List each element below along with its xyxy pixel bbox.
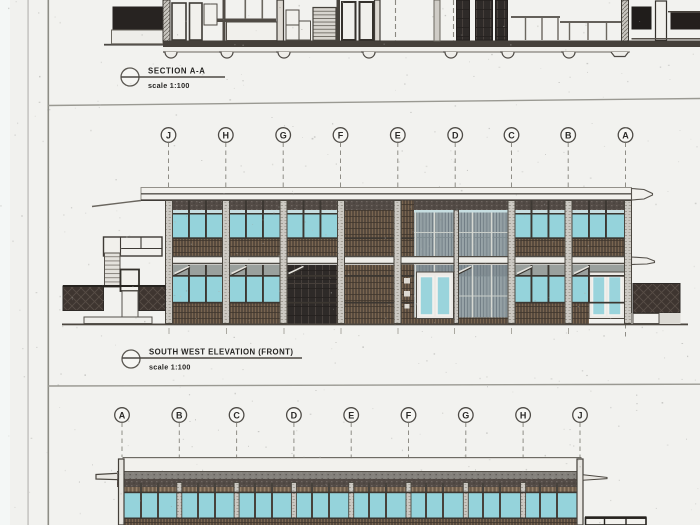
svg-text:D: D	[291, 410, 298, 420]
svg-text:H: H	[520, 410, 527, 420]
svg-text:E: E	[395, 130, 401, 140]
svg-text:C: C	[508, 130, 515, 140]
svg-text:C: C	[233, 410, 240, 420]
svg-text:F: F	[338, 130, 344, 140]
svg-text:J: J	[166, 130, 171, 140]
svg-text:G: G	[462, 410, 469, 420]
svg-text:J: J	[577, 410, 582, 420]
svg-text:scale 1:100: scale 1:100	[148, 81, 190, 90]
svg-text:B: B	[176, 410, 183, 420]
svg-text:SOUTH WEST ELEVATION (FRONT): SOUTH WEST ELEVATION (FRONT)	[149, 348, 293, 357]
svg-text:A: A	[119, 410, 126, 420]
svg-text:H: H	[223, 130, 230, 140]
svg-text:D: D	[452, 130, 459, 140]
svg-text:E: E	[348, 410, 354, 420]
svg-text:scale 1:100: scale 1:100	[149, 363, 191, 372]
svg-text:SECTION A-A: SECTION A-A	[148, 67, 206, 76]
svg-text:B: B	[565, 130, 572, 140]
svg-text:F: F	[406, 410, 412, 420]
svg-text:G: G	[280, 130, 287, 140]
svg-text:A: A	[622, 130, 629, 140]
